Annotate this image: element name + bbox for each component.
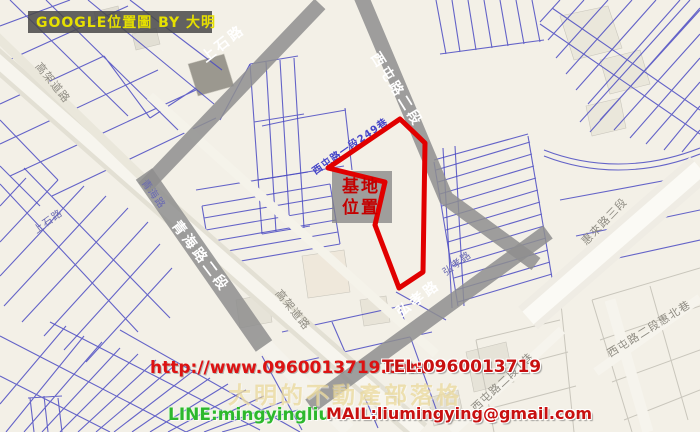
- watermark-telephone: TEL:0960013719: [382, 357, 541, 377]
- watermark-email: MAIL:liumingying@gmail.com: [326, 404, 592, 423]
- site-label-line2: 位置: [342, 197, 380, 218]
- watermark-line-id: LINE:mingyingliu: [168, 405, 331, 425]
- title-banner: GOOGLE位置圖 BY 大明: [28, 11, 212, 33]
- site-label-line1: 基地: [341, 176, 380, 197]
- banner-title: GOOGLE位置圖 BY 大明: [28, 12, 216, 32]
- map-screenshot: 西屯路一段249巷 青海路 上石路 弘孝路 高架道路 高架道路 惠來路三段 西屯…: [0, 0, 700, 432]
